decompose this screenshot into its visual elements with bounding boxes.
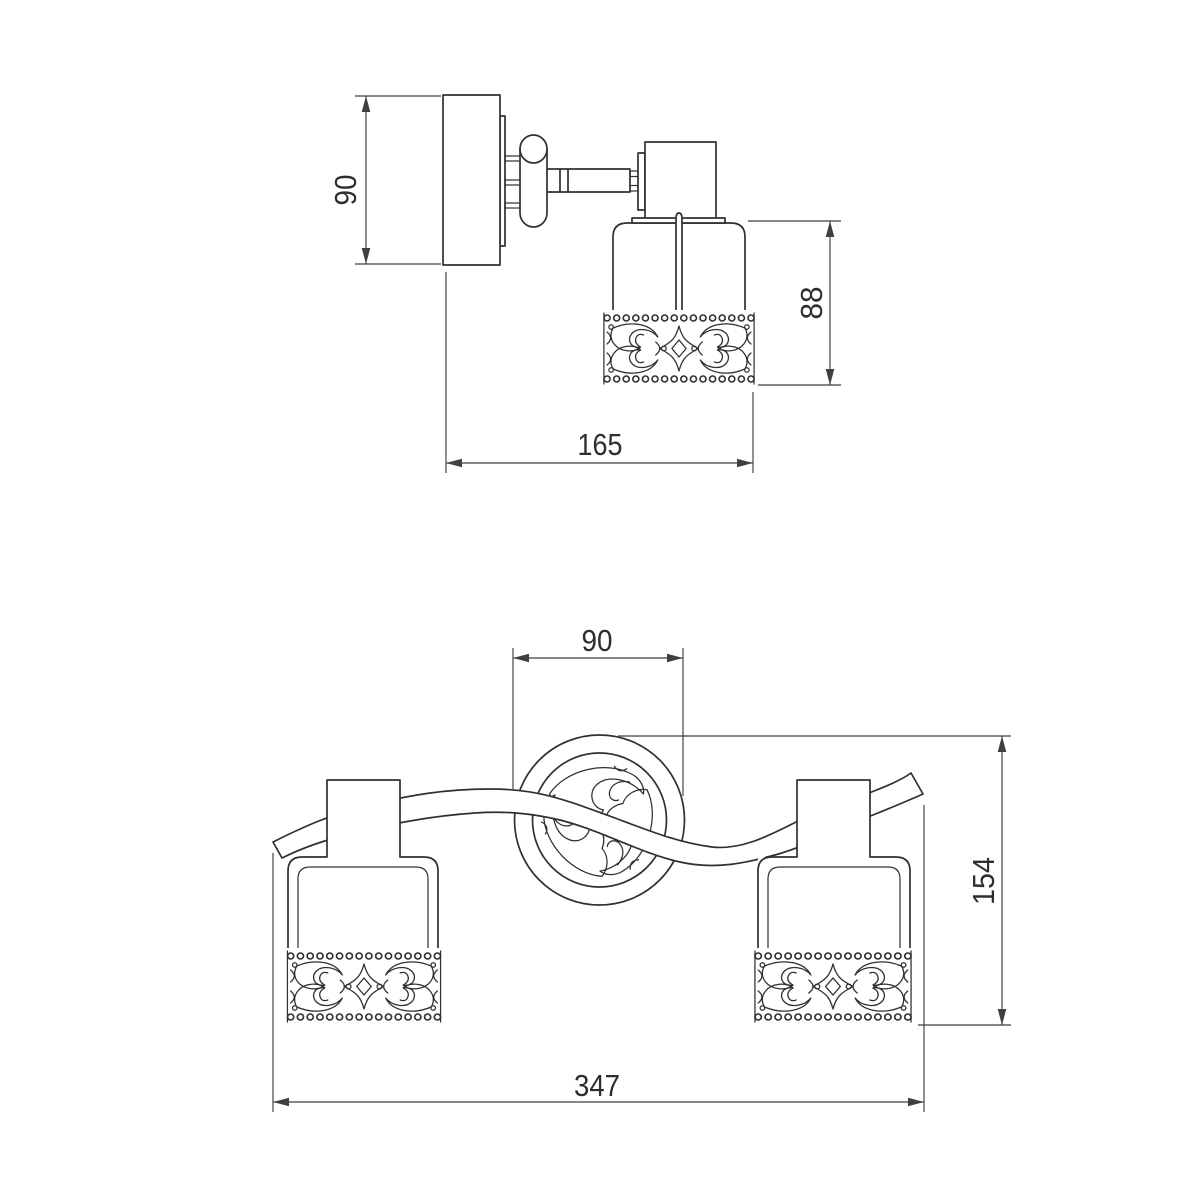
dim-label-front-height: 154 bbox=[966, 857, 1001, 905]
swivel-arm bbox=[543, 169, 630, 192]
lamp-head-side bbox=[645, 142, 716, 220]
dimension-side-height: 90 bbox=[328, 96, 441, 264]
dim-label-front-width: 347 bbox=[574, 1068, 620, 1103]
wall-plate bbox=[443, 95, 500, 265]
shade-stem bbox=[676, 213, 682, 312]
technical-drawing-page: 90 88 165 bbox=[0, 0, 1200, 1200]
lamp-head-left bbox=[327, 780, 400, 858]
front-view: 90 154 347 bbox=[273, 623, 1011, 1112]
swivel-joint bbox=[520, 135, 547, 227]
dimension-front-canopy: 90 bbox=[513, 623, 683, 796]
dim-label-front-canopy: 90 bbox=[582, 623, 613, 658]
shade-left bbox=[287, 857, 442, 1025]
drawing-canvas: 90 88 165 bbox=[0, 0, 1200, 1200]
dim-label-side-shade-height: 88 bbox=[794, 287, 829, 320]
dim-label-side-height: 90 bbox=[328, 175, 363, 206]
bracket-pins bbox=[505, 156, 521, 208]
dim-label-side-depth: 165 bbox=[578, 427, 623, 462]
dimension-side-shade-height: 88 bbox=[748, 221, 841, 385]
head-pins bbox=[630, 171, 638, 191]
side-view: 90 88 165 bbox=[328, 95, 841, 473]
ornament-band-side bbox=[603, 310, 755, 387]
shade-right bbox=[754, 857, 912, 1025]
head-mount-plate bbox=[638, 153, 645, 210]
lamp-head-right bbox=[797, 780, 870, 858]
